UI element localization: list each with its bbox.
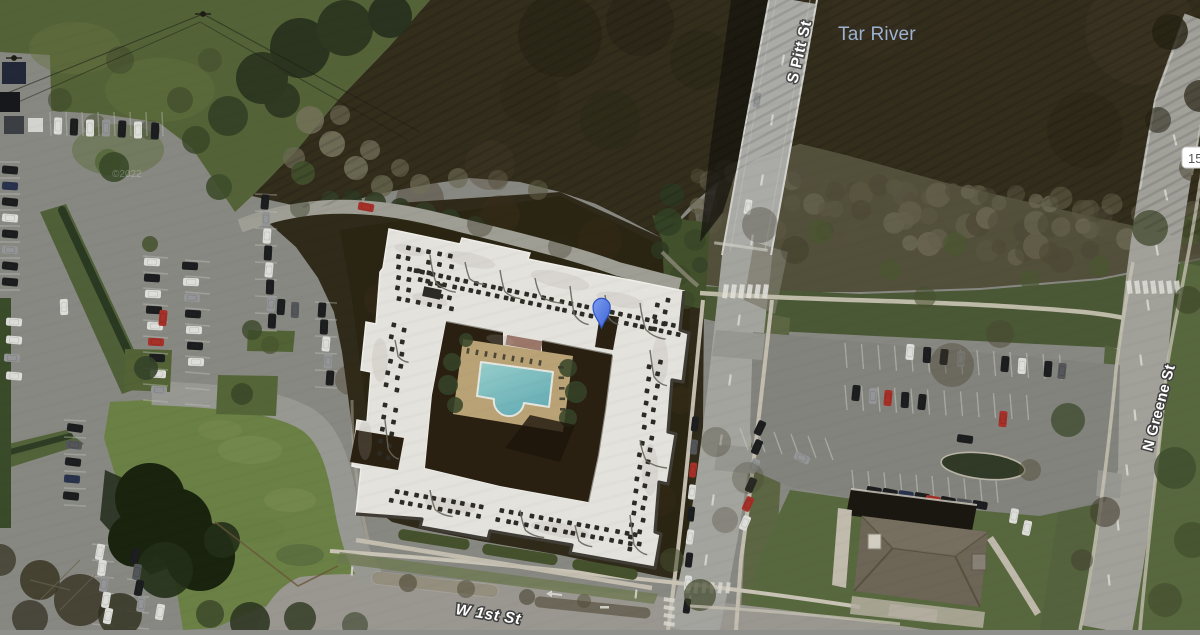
svg-text:©2022: ©2022 <box>112 169 142 180</box>
svg-text:Tar River: Tar River <box>838 24 916 45</box>
svg-text:Google: Google <box>630 287 663 298</box>
svg-text:15: 15 <box>1188 151 1200 166</box>
